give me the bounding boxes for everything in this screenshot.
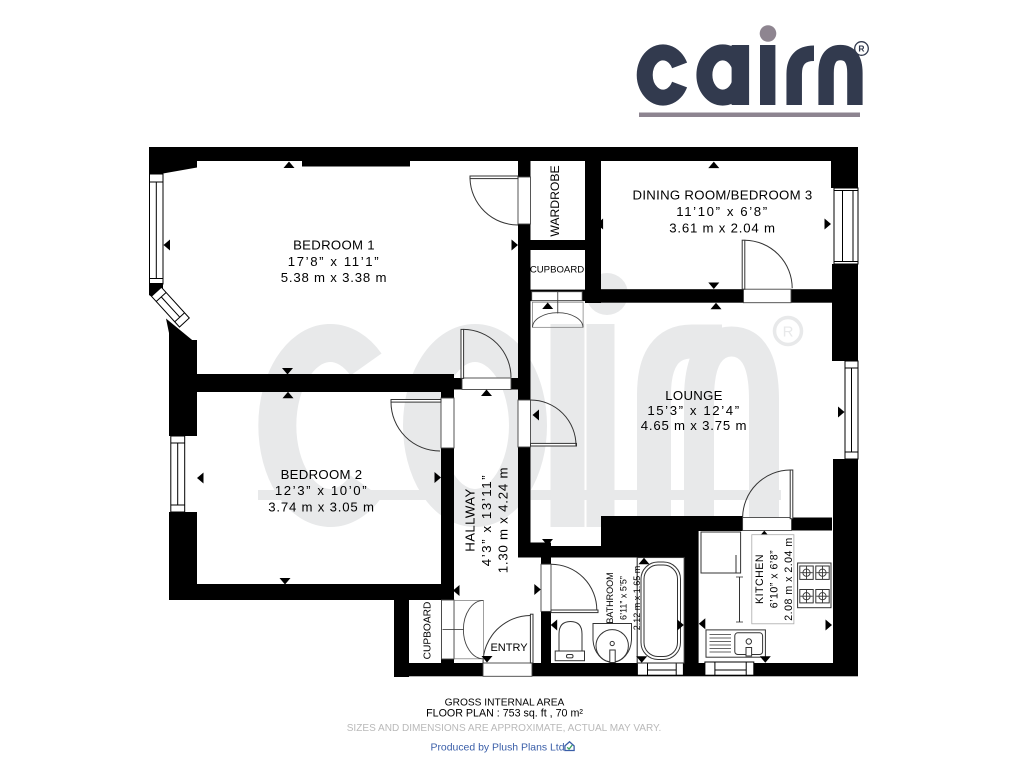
svg-text:4.65 m x 3.75 m: 4.65 m x 3.75 m [641, 418, 748, 433]
svg-text:15’3” x 12’4”: 15’3” x 12’4” [647, 403, 740, 418]
svg-text:CUPBOARD: CUPBOARD [422, 602, 433, 660]
svg-text:1.30 m x 4.24 m: 1.30 m x 4.24 m [495, 467, 510, 574]
svg-text:6’10” x 6’8”: 6’10” x 6’8” [769, 550, 781, 608]
svg-text:3.74 m x 3.05 m: 3.74 m x 3.05 m [268, 499, 375, 514]
svg-text:DINING ROOM/BEDROOM 3: DINING ROOM/BEDROOM 3 [633, 188, 813, 203]
svg-text:WARDROBE: WARDROBE [548, 165, 562, 236]
svg-text:BATHROOM: BATHROOM [605, 572, 615, 623]
svg-text:6’11” x 5’5”: 6’11” x 5’5” [619, 576, 629, 620]
svg-text:FLOOR PLAN : 753 sq. ft , 70 m: FLOOR PLAN : 753 sq. ft , 70 m² [426, 707, 583, 719]
svg-text:4’3” x 13’11”: 4’3” x 13’11” [479, 474, 494, 566]
svg-text:17’8” x 11’1”: 17’8” x 11’1” [288, 254, 380, 269]
svg-text:11’10” x 6’8”: 11’10” x 6’8” [676, 204, 768, 219]
svg-text:12’3” x 10’0”: 12’3” x 10’0” [275, 483, 368, 498]
svg-text:2.12 m x 1.65 m: 2.12 m x 1.65 m [632, 566, 642, 631]
svg-text:ENTRY: ENTRY [490, 642, 528, 654]
svg-text:R: R [858, 44, 864, 54]
svg-text:5.38 m x 3.38 m: 5.38 m x 3.38 m [281, 270, 388, 285]
svg-text:Produced by Plush Plans Ltd: Produced by Plush Plans Ltd [430, 742, 564, 753]
svg-text:KITCHEN: KITCHEN [754, 554, 766, 604]
svg-text:BEDROOM 1: BEDROOM 1 [293, 238, 375, 253]
svg-text:LOUNGE: LOUNGE [665, 388, 723, 403]
svg-text:3.61 m x 2.04 m: 3.61 m x 2.04 m [669, 220, 776, 235]
svg-text:SIZES AND DIMENSIONS ARE APPRO: SIZES AND DIMENSIONS ARE APPROXIMATE, AC… [347, 723, 662, 734]
svg-text:BEDROOM 2: BEDROOM 2 [281, 467, 363, 482]
svg-text:2.08 m x 2.04 m: 2.08 m x 2.04 m [783, 537, 795, 620]
svg-text:HALLWAY: HALLWAY [463, 488, 478, 551]
svg-text:R: R [783, 324, 794, 341]
svg-text:CUPBOARD: CUPBOARD [530, 264, 584, 275]
